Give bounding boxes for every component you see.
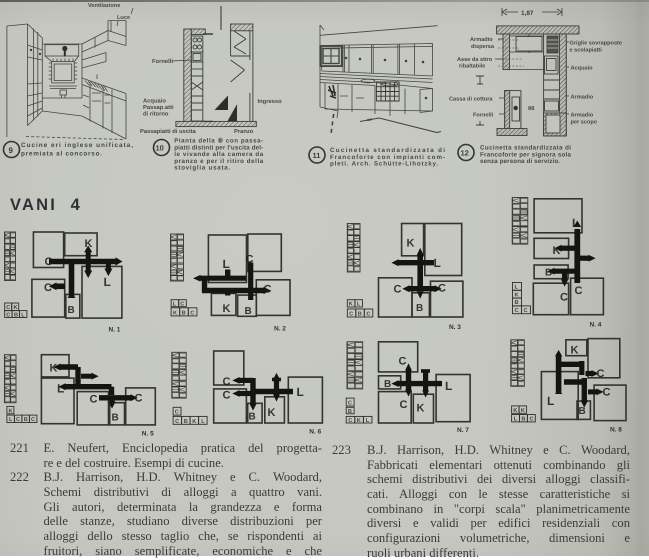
svg-text:di ritorno: di ritorno xyxy=(143,111,169,118)
svg-text:C: C xyxy=(515,308,519,314)
svg-text:C: C xyxy=(349,312,353,318)
svg-text:C: C xyxy=(348,400,352,406)
svg-text:C: C xyxy=(135,393,143,405)
svg-text:C: C xyxy=(223,376,231,388)
svg-text:C: C xyxy=(524,308,528,314)
svg-text:86: 86 xyxy=(528,105,535,112)
svg-text:C: C xyxy=(31,417,35,423)
svg-text:N. 5: N. 5 xyxy=(142,431,154,438)
svg-text:B: B xyxy=(14,312,18,318)
svg-text:L: L xyxy=(366,418,370,424)
svg-text:L: L xyxy=(104,275,111,289)
svg-text:L: L xyxy=(445,379,452,393)
svg-text:C: C xyxy=(175,410,179,416)
svg-text:Passap.atti: Passap.atti xyxy=(143,104,174,111)
svg-text:K: K xyxy=(407,238,415,250)
svg-text:11: 11 xyxy=(313,151,321,160)
svg-text:ribaltabile: ribaltabile xyxy=(459,63,485,70)
svg-text:L: L xyxy=(201,419,205,425)
svg-text:B: B xyxy=(182,311,186,317)
svg-text:C: C xyxy=(575,285,583,297)
svg-text:L: L xyxy=(434,256,441,270)
svg-text:K: K xyxy=(521,408,525,414)
svg-text:K: K xyxy=(50,363,58,375)
svg-text:C: C xyxy=(438,283,446,295)
svg-text:N. 6: N. 6 xyxy=(309,429,321,436)
svg-text:L: L xyxy=(297,385,304,399)
svg-text:C: C xyxy=(6,305,10,311)
svg-text:Passapiatti di uscita: Passapiatti di uscita xyxy=(140,128,197,135)
svg-text:C: C xyxy=(264,284,272,296)
svg-text:Armadio: Armadio xyxy=(470,36,493,43)
svg-text:C: C xyxy=(44,282,52,294)
svg-text:B: B xyxy=(245,306,252,317)
svg-text:C: C xyxy=(603,387,611,399)
svg-text:B: B xyxy=(249,412,256,423)
svg-text:Acquaio: Acquaio xyxy=(571,65,594,72)
svg-text:Armadio: Armadio xyxy=(571,112,594,119)
svg-text:10: 10 xyxy=(156,144,164,153)
svg-text:C: C xyxy=(16,417,20,423)
svg-text:B: B xyxy=(416,303,423,314)
svg-text:C: C xyxy=(6,312,10,318)
svg-text:B: B xyxy=(545,268,552,279)
svg-text:C: C xyxy=(394,284,402,296)
svg-text:K: K xyxy=(515,292,519,298)
svg-text:N. 8: N. 8 xyxy=(610,427,622,434)
svg-text:Ingresso: Ingresso xyxy=(258,99,283,105)
svg-text:K: K xyxy=(14,305,18,311)
svg-text:C: C xyxy=(190,311,194,317)
svg-text:K: K xyxy=(85,238,93,250)
svg-text:K: K xyxy=(223,303,231,315)
svg-text:9: 9 xyxy=(9,146,14,155)
svg-text:pleti. Arch. Schütte-Lihotzky.: pleti. Arch. Schütte-Lihotzky. xyxy=(330,161,438,168)
svg-text:12: 12 xyxy=(461,149,469,158)
svg-text:L: L xyxy=(21,312,25,318)
svg-text:L: L xyxy=(223,257,230,271)
svg-text:Griglie sovrapposte: Griglie sovrapposte xyxy=(570,40,623,47)
svg-text:L: L xyxy=(572,216,579,230)
svg-text:K: K xyxy=(173,311,177,317)
svg-text:C: C xyxy=(597,368,605,380)
svg-text:B: B xyxy=(384,379,391,390)
svg-text:B: B xyxy=(515,300,519,306)
svg-text:e scolapiatti: e scolapiatti xyxy=(570,46,603,53)
svg-text:Pranzo: Pranzo xyxy=(234,129,254,135)
svg-text:premiata al concorso.: premiata al concorso. xyxy=(21,151,102,158)
svg-text:Asse da stiro: Asse da stiro xyxy=(457,56,493,63)
svg-text:senza persona di servizio.: senza persona di servizio. xyxy=(480,158,560,165)
svg-text:C: C xyxy=(366,312,370,318)
svg-text:L: L xyxy=(57,382,64,396)
svg-text:K: K xyxy=(268,407,276,419)
svg-text:C: C xyxy=(400,399,408,411)
svg-text:C: C xyxy=(180,301,184,307)
svg-text:dispersa: dispersa xyxy=(471,43,495,50)
svg-text:B: B xyxy=(348,409,352,415)
svg-text:Ventilazione: Ventilazione xyxy=(88,2,120,9)
svg-text:L: L xyxy=(515,285,519,291)
svg-text:Cucine eri inglese unificata,: Cucine eri inglese unificata, xyxy=(21,142,133,149)
svg-text:C: C xyxy=(399,356,407,368)
svg-text:K: K xyxy=(553,245,561,257)
svg-text:K: K xyxy=(571,345,579,357)
svg-text:Acquaio: Acquaio xyxy=(143,98,166,105)
svg-text:N. 7: N. 7 xyxy=(457,427,469,434)
svg-text:C: C xyxy=(45,256,53,268)
svg-text:L: L xyxy=(547,394,554,408)
svg-text:C: C xyxy=(175,419,179,425)
svg-text:stoviglia usata.: stoviglia usata. xyxy=(174,165,230,172)
svg-text:B: B xyxy=(358,312,362,318)
svg-text:Fornelli: Fornelli xyxy=(473,112,494,119)
svg-text:B: B xyxy=(184,419,188,425)
svg-text:Luce: Luce xyxy=(117,15,130,21)
svg-text:N. 4: N. 4 xyxy=(590,322,602,329)
svg-text:K: K xyxy=(417,403,425,415)
svg-text:L: L xyxy=(9,417,13,423)
svg-text:K: K xyxy=(349,301,353,307)
svg-text:B: B xyxy=(112,413,119,424)
svg-text:K: K xyxy=(192,419,196,425)
svg-text:per scope: per scope xyxy=(571,119,597,125)
svg-text:C: C xyxy=(246,254,254,266)
svg-text:C: C xyxy=(90,394,98,406)
svg-text:B: B xyxy=(68,305,75,316)
svg-text:1,87: 1,87 xyxy=(521,10,534,17)
svg-text:Armadio: Armadio xyxy=(571,94,594,101)
svg-text:B: B xyxy=(24,417,28,423)
svg-text:L: L xyxy=(357,301,361,307)
svg-text:C: C xyxy=(223,390,231,402)
svg-text:K: K xyxy=(513,408,517,414)
svg-text:L: L xyxy=(514,417,518,423)
svg-text:Fornelli: Fornelli xyxy=(152,58,173,65)
svg-text:K: K xyxy=(357,418,361,424)
svg-text:B: B xyxy=(521,417,525,423)
svg-text:K: K xyxy=(9,409,13,415)
svg-text:B: B xyxy=(579,406,586,417)
svg-text:L: L xyxy=(173,301,177,307)
svg-text:Cassa di cottura: Cassa di cottura xyxy=(449,96,493,103)
svg-text:C: C xyxy=(560,292,568,304)
svg-text:C: C xyxy=(530,417,534,423)
svg-text:C: C xyxy=(348,418,352,424)
